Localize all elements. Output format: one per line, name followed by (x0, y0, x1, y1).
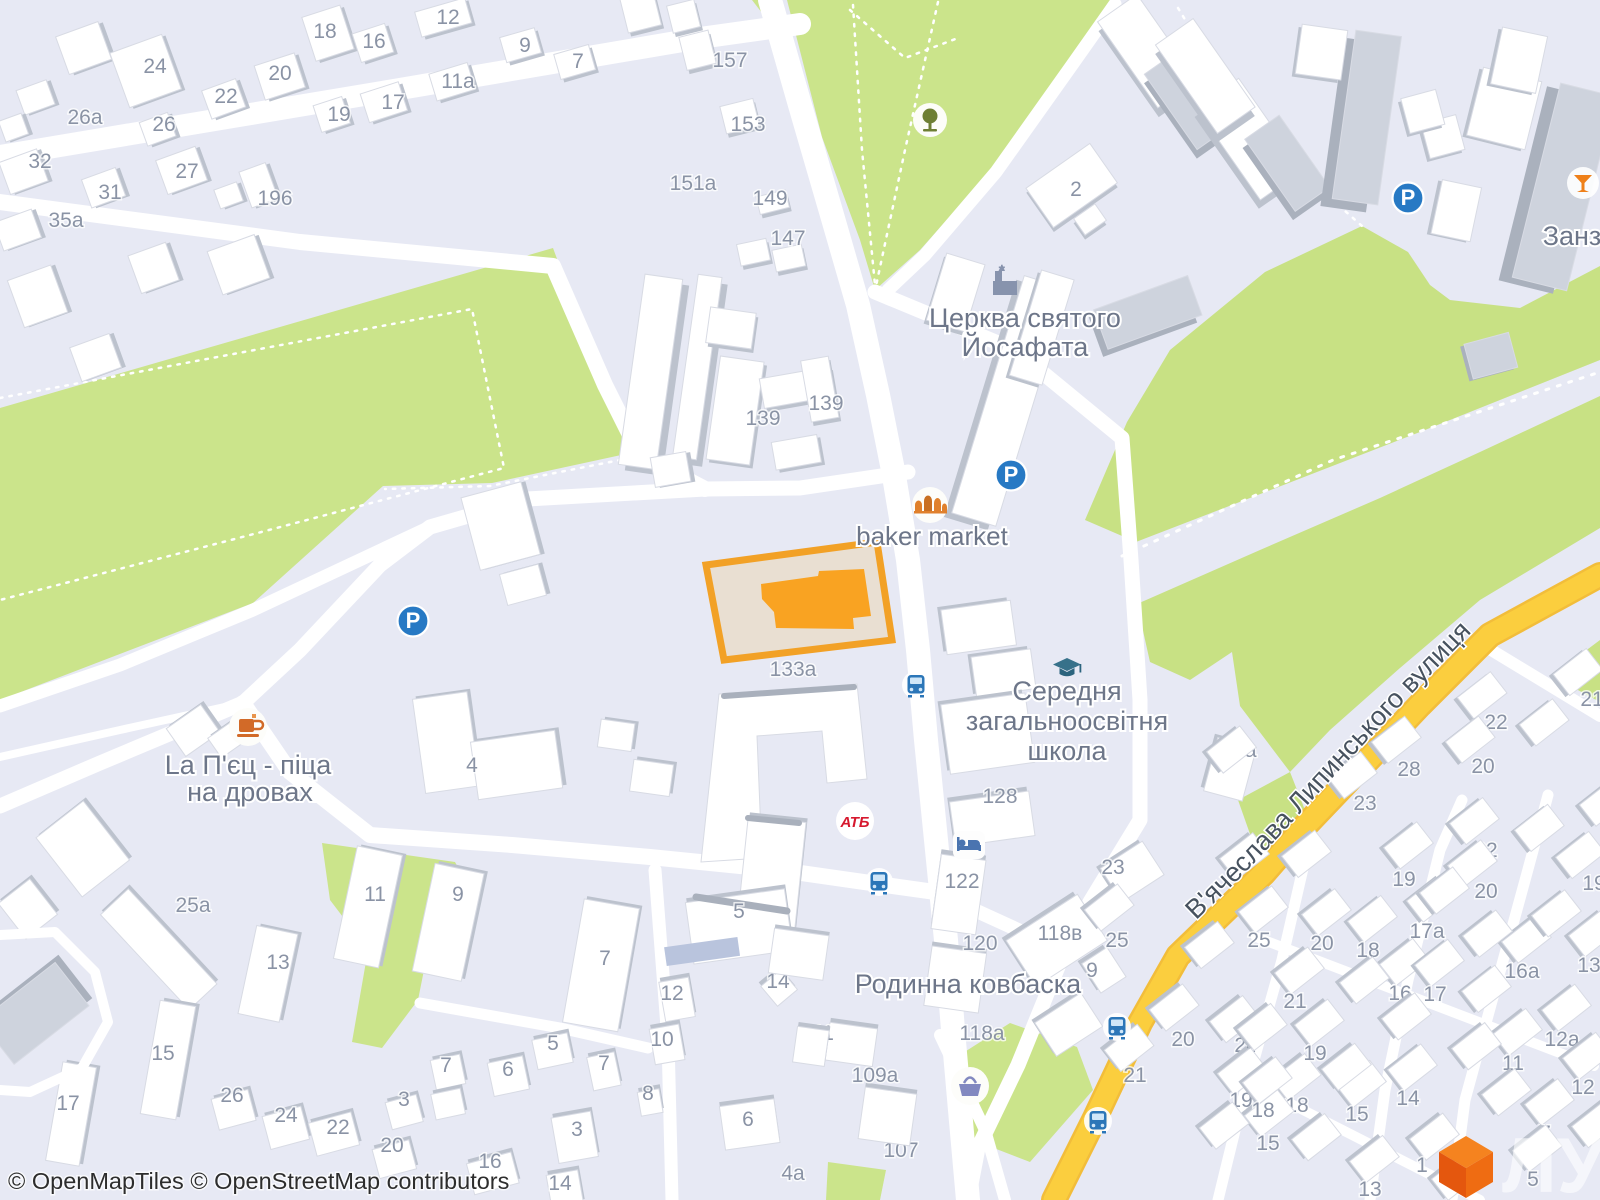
svg-text:13: 13 (266, 951, 289, 974)
svg-text:12: 12 (1571, 1076, 1594, 1099)
svg-text:23: 23 (1101, 856, 1124, 879)
svg-text:5: 5 (733, 900, 745, 923)
svg-text:19: 19 (327, 103, 350, 126)
svg-text:149: 149 (752, 187, 787, 210)
svg-text:© OpenMapTiles © OpenStreetMap: © OpenMapTiles © OpenStreetMap contribut… (8, 1168, 509, 1194)
svg-text:9: 9 (1086, 959, 1098, 982)
svg-text:196: 196 (257, 187, 292, 210)
svg-text:20: 20 (380, 1134, 403, 1157)
svg-text:13: 13 (1577, 954, 1600, 977)
svg-text:17а: 17а (1409, 920, 1444, 943)
svg-text:10: 10 (650, 1028, 673, 1051)
svg-text:La П'єц - піца: La П'єц - піца (165, 750, 332, 780)
svg-text:35a: 35a (48, 209, 83, 232)
svg-text:АТБ: АТБ (839, 814, 869, 831)
svg-text:157: 157 (712, 49, 747, 72)
svg-text:13: 13 (1358, 1178, 1381, 1200)
svg-text:31: 31 (98, 181, 121, 204)
svg-text:32: 32 (28, 150, 51, 173)
svg-text:15: 15 (1345, 1103, 1368, 1126)
svg-text:22: 22 (214, 85, 237, 108)
svg-text:ЛУН: ЛУН (1502, 1121, 1600, 1200)
svg-text:7: 7 (572, 50, 584, 73)
svg-text:26: 26 (152, 113, 175, 136)
svg-text:122: 122 (944, 870, 979, 893)
svg-text:21: 21 (1123, 1064, 1146, 1087)
svg-text:12: 12 (436, 6, 459, 29)
svg-text:133a: 133a (770, 658, 817, 681)
svg-text:153: 153 (730, 113, 765, 136)
svg-text:школа: школа (1028, 736, 1108, 766)
svg-text:118в: 118в (1038, 922, 1083, 945)
svg-text:26: 26 (220, 1084, 243, 1107)
svg-text:11: 11 (364, 883, 386, 906)
svg-text:20: 20 (1310, 932, 1333, 955)
svg-text:5: 5 (547, 1032, 559, 1055)
svg-text:26a: 26a (67, 106, 102, 129)
svg-text:загальноосвітня: загальноосвітня (966, 706, 1168, 736)
svg-text:P: P (1004, 462, 1019, 487)
svg-text:23: 23 (1353, 792, 1376, 815)
svg-text:8: 8 (642, 1082, 654, 1105)
svg-text:7: 7 (440, 1054, 452, 1077)
svg-text:на дровах: на дровах (187, 777, 313, 807)
svg-text:17: 17 (1423, 983, 1446, 1006)
svg-text:24: 24 (143, 55, 167, 78)
svg-text:9: 9 (452, 883, 464, 906)
svg-text:Середня: Середня (1012, 676, 1121, 706)
svg-text:25: 25 (1105, 929, 1128, 952)
svg-text:15: 15 (151, 1042, 174, 1065)
svg-text:109а: 109а (852, 1064, 899, 1087)
svg-text:19: 19 (1582, 872, 1600, 895)
svg-text:22: 22 (326, 1116, 349, 1139)
svg-text:17: 17 (56, 1092, 79, 1115)
svg-text:20: 20 (1471, 755, 1494, 778)
svg-text:7: 7 (598, 1052, 610, 1075)
svg-text:14: 14 (1396, 1087, 1420, 1110)
svg-text:20: 20 (268, 62, 291, 85)
svg-text:27: 27 (175, 160, 198, 183)
svg-text:6: 6 (502, 1058, 514, 1081)
svg-text:P: P (1401, 185, 1416, 210)
svg-text:7: 7 (599, 947, 611, 970)
svg-text:25а: 25а (175, 894, 210, 917)
svg-text:11a: 11a (441, 70, 475, 93)
svg-text:14: 14 (548, 1172, 572, 1195)
svg-text:18: 18 (1251, 1099, 1274, 1122)
svg-text:9: 9 (519, 34, 531, 57)
svg-text:P: P (406, 608, 421, 633)
svg-text:3: 3 (398, 1088, 410, 1111)
svg-text:21: 21 (1283, 990, 1306, 1013)
svg-text:16: 16 (362, 30, 385, 53)
svg-text:20: 20 (1474, 880, 1497, 903)
svg-text:24: 24 (274, 1104, 298, 1127)
svg-text:21: 21 (1580, 688, 1600, 711)
svg-text:Занз: Занз (1543, 221, 1600, 251)
svg-text:118а: 118а (959, 1022, 1004, 1045)
svg-text:Родинна ковбаска: Родинна ковбаска (855, 969, 1082, 999)
svg-text:16а: 16а (1504, 960, 1539, 983)
svg-text:28: 28 (1397, 758, 1420, 781)
svg-text:3: 3 (571, 1118, 583, 1141)
svg-text:19: 19 (1303, 1042, 1326, 1065)
svg-text:20: 20 (1171, 1028, 1194, 1051)
svg-text:2: 2 (1070, 178, 1082, 201)
svg-text:1: 1 (1416, 1154, 1428, 1177)
svg-text:baker market: baker market (856, 521, 1008, 551)
svg-text:139: 139 (808, 392, 843, 415)
svg-text:4а: 4а (781, 1162, 805, 1185)
svg-text:25: 25 (1247, 929, 1270, 952)
svg-text:4: 4 (466, 754, 478, 777)
svg-text:6: 6 (742, 1108, 754, 1131)
svg-text:128: 128 (982, 785, 1017, 808)
svg-text:Йосафата: Йосафата (962, 331, 1090, 362)
svg-text:18: 18 (313, 20, 336, 43)
svg-text:151a: 151a (670, 172, 717, 195)
svg-text:17: 17 (381, 91, 404, 114)
svg-text:Церква святого: Церква святого (929, 303, 1121, 333)
svg-text:147: 147 (770, 227, 805, 250)
svg-text:19: 19 (1392, 868, 1415, 891)
svg-text:120: 120 (962, 932, 997, 955)
svg-text:15: 15 (1256, 1132, 1279, 1155)
svg-text:139: 139 (745, 407, 780, 430)
svg-text:12: 12 (660, 982, 683, 1005)
